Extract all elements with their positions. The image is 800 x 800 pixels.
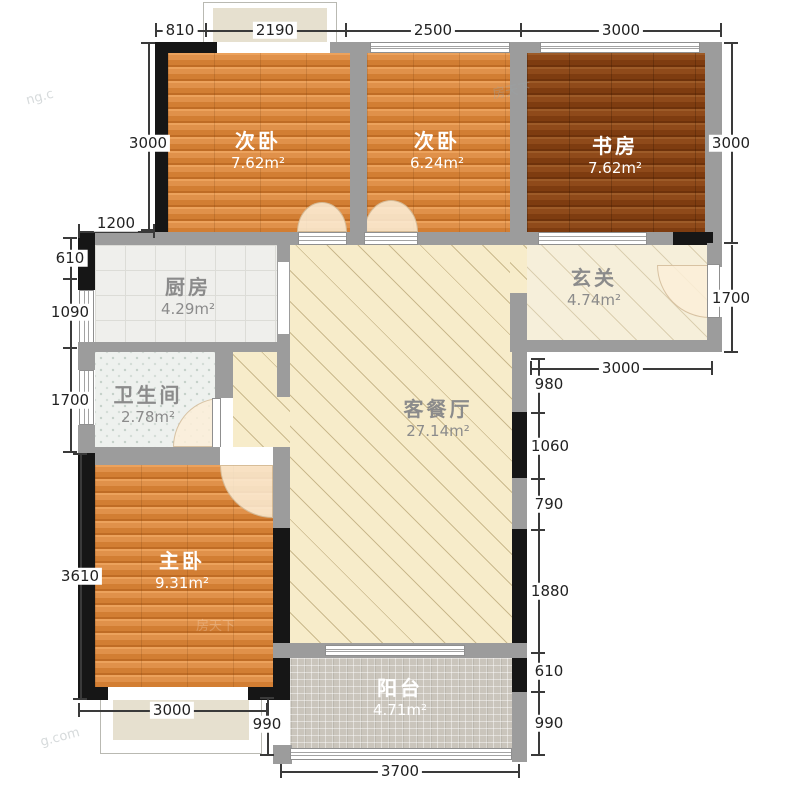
dim-master-3000: 3000 <box>150 702 194 719</box>
wall-entry-living-divider <box>510 293 527 340</box>
bedroom2-top-window <box>370 42 510 53</box>
bathroom-door-leaf <box>212 398 221 448</box>
dim-left-3000: 3000 <box>126 135 170 152</box>
room-living-passage-floor <box>510 245 527 293</box>
dim-left-1090: 1090 <box>48 304 92 321</box>
master-area: 9.31m² <box>155 574 209 592</box>
wall-master-right-black <box>273 528 290 693</box>
tick <box>260 754 274 756</box>
tick <box>78 703 80 717</box>
tick <box>518 764 520 778</box>
dim-chain-1880: 1880 <box>528 583 572 600</box>
dim-right-1700: 1700 <box>709 290 753 307</box>
dim-left-1700: 1700 <box>48 392 92 409</box>
dim-left-3610: 3610 <box>58 568 102 585</box>
dim-chain-990: 990 <box>532 715 567 732</box>
tick <box>531 652 545 654</box>
dim-top-3000: 3000 <box>599 22 643 39</box>
balcony-area: 4.71m² <box>373 701 427 719</box>
balcony-railing <box>290 748 512 760</box>
tick <box>155 23 157 37</box>
label-study: 书房 7.62m² <box>588 133 642 177</box>
dim-right-3000: 3000 <box>709 135 753 152</box>
tick <box>531 754 545 756</box>
bedroom1-name: 次卧 <box>231 128 285 154</box>
tick <box>520 23 522 37</box>
label-master: 主卧 9.31m² <box>155 548 209 592</box>
tick <box>531 529 545 531</box>
label-living: 客餐厅 27.14m² <box>404 396 473 440</box>
tick <box>63 347 77 349</box>
entry-name: 玄关 <box>567 265 621 291</box>
bay-top-opening <box>217 42 330 53</box>
label-bedroom2: 次卧 6.24m² <box>410 128 464 172</box>
dim-bay-990: 990 <box>250 716 285 733</box>
watermark-3: g.com <box>39 725 82 750</box>
dim-top-2500: 2500 <box>411 22 455 39</box>
label-kitchen: 厨房 4.29m² <box>161 274 215 318</box>
tick <box>531 691 545 693</box>
tick <box>63 278 77 280</box>
bedroom2-area: 6.24m² <box>410 154 464 172</box>
living-area: 27.14m² <box>404 422 473 440</box>
study-bottom-window <box>538 232 647 245</box>
tick <box>73 453 87 455</box>
tick <box>724 42 738 44</box>
bedroom2-door-opening <box>364 232 418 245</box>
dim-chain-980: 980 <box>532 376 567 393</box>
tick <box>530 361 532 375</box>
wall-bathroom-right <box>215 352 233 398</box>
tick <box>153 224 155 238</box>
label-bathroom: 卫生间 2.78m² <box>114 382 183 426</box>
tick <box>63 237 77 239</box>
tick <box>720 23 722 37</box>
tick <box>141 42 155 44</box>
room-living-floor <box>290 245 512 643</box>
dim-left-610: 610 <box>53 250 88 267</box>
wall-living-right-black2 <box>512 529 527 653</box>
living-name: 客餐厅 <box>404 396 473 422</box>
wall-living-right-black1 <box>512 412 527 478</box>
bathroom-name: 卫生间 <box>114 382 183 408</box>
wall-master-right-gray <box>273 465 290 528</box>
dim-top-2190: 2190 <box>253 22 297 39</box>
floor-plan: 810 2190 2500 3000 3000 1200 610 1090 17… <box>0 0 800 800</box>
wall-living-right-gray2 <box>512 478 527 529</box>
kitchen-opening <box>278 262 289 334</box>
tick <box>724 242 738 244</box>
bedroom1-door-opening <box>298 232 347 245</box>
tick <box>531 478 545 480</box>
dim-left-1200: 1200 <box>94 215 138 232</box>
tick <box>345 23 347 37</box>
dim-line-left-chain <box>70 237 72 453</box>
tick <box>73 698 87 700</box>
study-name: 书房 <box>588 133 642 159</box>
label-bedroom1: 次卧 7.62m² <box>231 128 285 172</box>
bedroom1-area: 7.62m² <box>231 154 285 172</box>
bathroom-area: 2.78m² <box>114 408 183 426</box>
tick <box>78 224 80 238</box>
master-bay-opening <box>108 688 248 699</box>
master-name: 主卧 <box>155 548 209 574</box>
watermark-4: 房天下 <box>196 615 235 634</box>
dim-chain-790: 790 <box>532 496 567 513</box>
kitchen-area: 4.29m² <box>161 300 215 318</box>
wall-bedroom1-2-divider <box>350 53 367 232</box>
tick <box>531 412 545 414</box>
kitchen-name: 厨房 <box>161 274 215 300</box>
tick <box>205 23 207 37</box>
dim-bottom-3700: 3700 <box>378 763 422 780</box>
balcony-name: 阳台 <box>373 675 427 701</box>
bedroom2-name: 次卧 <box>410 128 464 154</box>
wall-kitchen-bottom <box>78 342 290 352</box>
dim-line-right-chain <box>538 358 540 756</box>
wall-balcony-right-black <box>512 653 527 692</box>
dim-top-810: 810 <box>163 22 198 39</box>
tick <box>531 358 545 360</box>
dim-entry-3000: 3000 <box>599 360 643 377</box>
balcony-sliding-door <box>325 645 465 656</box>
dim-chain-1060: 1060 <box>528 438 572 455</box>
label-balcony: 阳台 4.71m² <box>373 675 427 719</box>
master-door-opening <box>220 447 273 465</box>
study-area: 7.62m² <box>588 159 642 177</box>
tick <box>724 351 738 353</box>
wall-balcony-right-gray <box>512 692 527 762</box>
tick <box>260 697 274 699</box>
wall-living-right-gray1 <box>512 352 527 412</box>
wall-entry-bottom <box>510 340 722 352</box>
tick <box>280 764 282 778</box>
dim-chain-610: 610 <box>532 663 567 680</box>
watermark-1: ng.c <box>25 87 56 109</box>
wall-entry-right-lower <box>707 317 722 352</box>
entry-area: 4.74m² <box>567 291 621 309</box>
label-entry: 玄关 4.74m² <box>567 265 621 309</box>
tick <box>711 361 713 375</box>
study-top-window <box>540 42 700 53</box>
